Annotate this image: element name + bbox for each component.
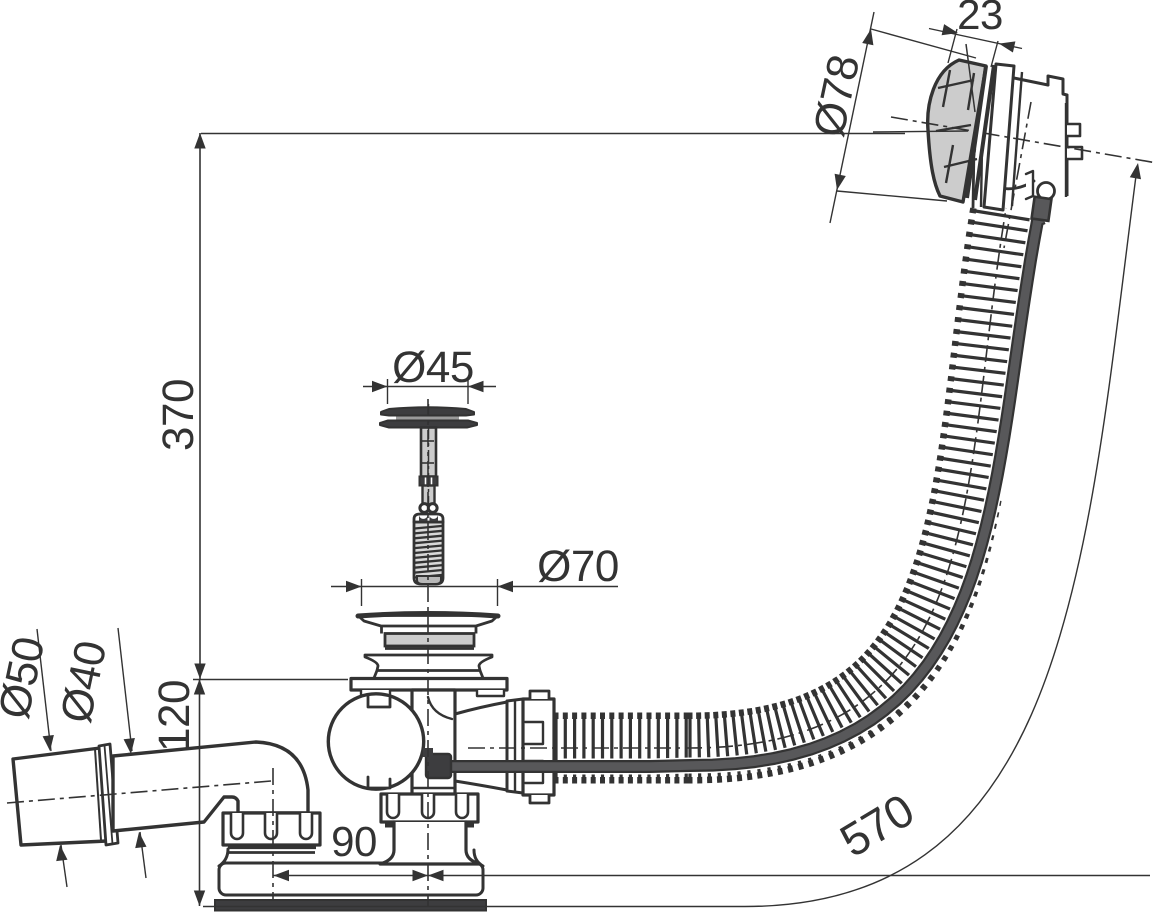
svg-text:370: 370 (154, 379, 203, 451)
svg-text:120: 120 (150, 680, 199, 752)
svg-text:Ø70: Ø70 (537, 542, 619, 591)
svg-text:23: 23 (957, 0, 1003, 38)
svg-text:Ø45: Ø45 (392, 343, 474, 392)
svg-text:90: 90 (331, 818, 377, 865)
